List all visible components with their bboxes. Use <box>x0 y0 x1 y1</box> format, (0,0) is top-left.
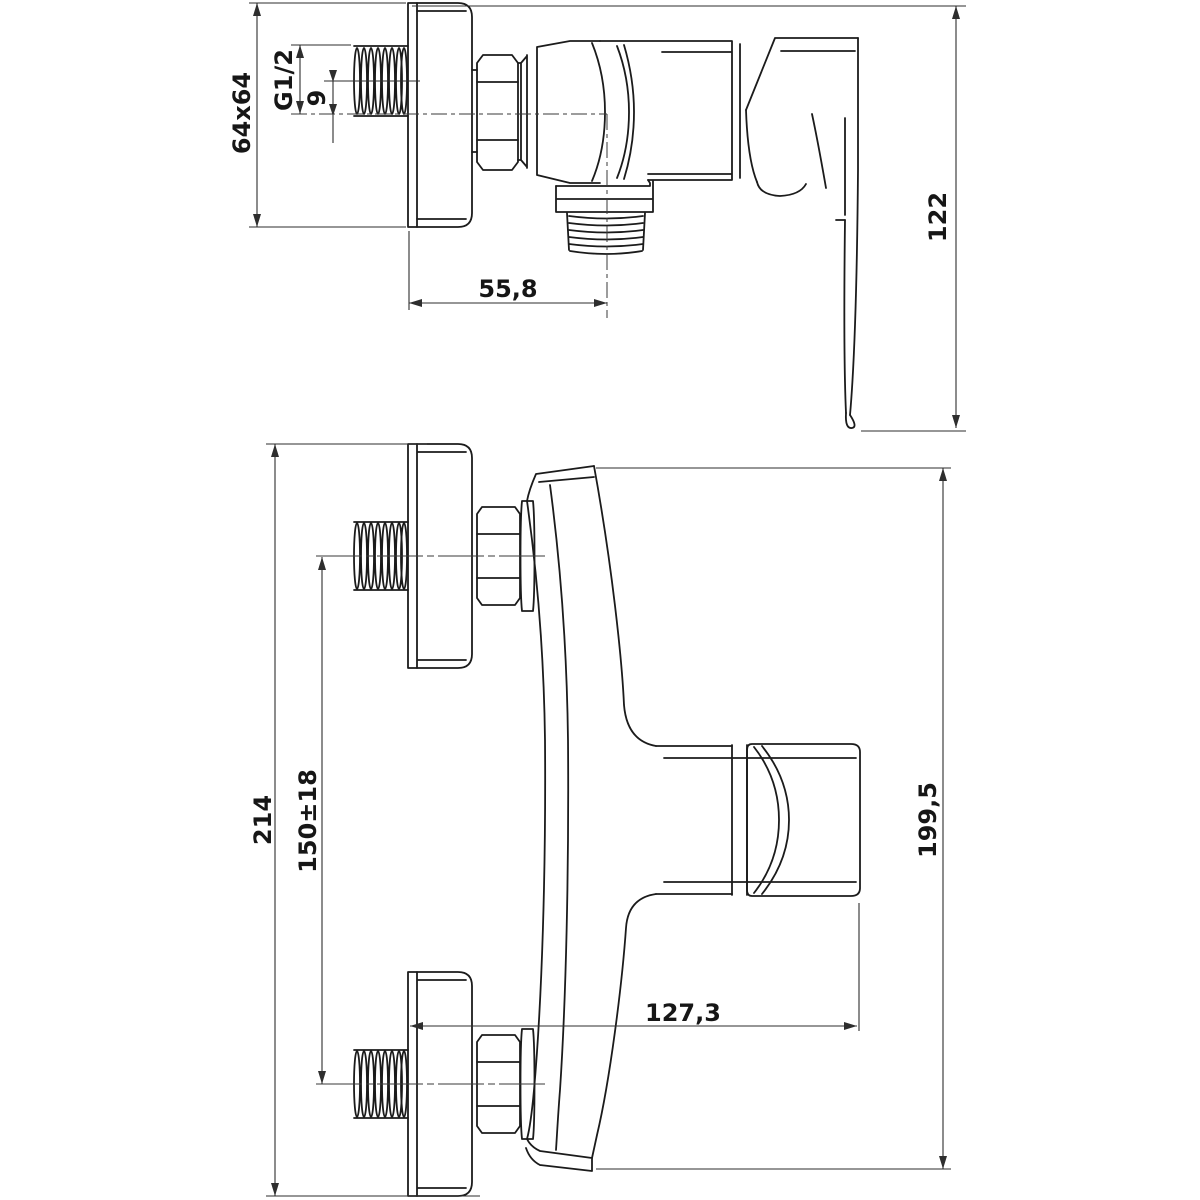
mixer-body <box>526 466 656 1171</box>
dim-overall-length: 199,5 <box>596 468 951 1169</box>
dim-handle-reach-label: 127,3 <box>645 999 721 1027</box>
dim-overall-span-label: 214 <box>249 795 277 845</box>
dim-outlet-distance: 55,8 <box>409 231 607 310</box>
dim-outlet-distance-label: 55,8 <box>478 275 537 303</box>
handle-grip <box>656 744 860 896</box>
hex-nut <box>472 55 527 170</box>
plate-chamfer-lines <box>417 11 466 219</box>
body-crease-line <box>550 485 568 1150</box>
body-left-silhouette <box>527 501 545 1139</box>
dim-plate-size: 64x64 <box>228 3 406 227</box>
outlet-connector <box>556 180 653 254</box>
dimensions-side: 64x64 G1/2 9 55,8 122 <box>228 3 966 431</box>
dim-inlet-spacing: 150±18 <box>294 557 322 1084</box>
side-view: 64x64 G1/2 9 55,8 122 <box>228 3 966 431</box>
dim-body-height-label: 122 <box>924 192 952 242</box>
wall-plate <box>408 3 472 227</box>
lever-tip <box>846 413 855 428</box>
dim-handle-reach: 127,3 <box>410 903 859 1031</box>
dim-thread-size-label: G1/2 <box>270 49 298 111</box>
technical-drawing: 64x64 G1/2 9 55,8 122 <box>0 0 1200 1200</box>
drawing-sheet: 64x64 G1/2 9 55,8 122 <box>0 0 1200 1200</box>
dim-eccentric-offset-label: 9 <box>303 90 331 107</box>
dim-overall-span: 214 <box>249 444 480 1196</box>
handle-lever <box>746 38 858 428</box>
valve-body <box>537 41 740 183</box>
dim-overall-length-label: 199,5 <box>914 782 942 858</box>
dim-plate-size-label: 64x64 <box>228 72 256 154</box>
dim-inlet-spacing-label: 150±18 <box>294 769 322 873</box>
centerlines-front <box>316 556 548 1084</box>
front-view: 214 150±18 199,5 127,3 <box>249 444 951 1196</box>
body-bottom-band <box>526 1139 592 1171</box>
dim-body-height: 122 <box>412 6 966 431</box>
